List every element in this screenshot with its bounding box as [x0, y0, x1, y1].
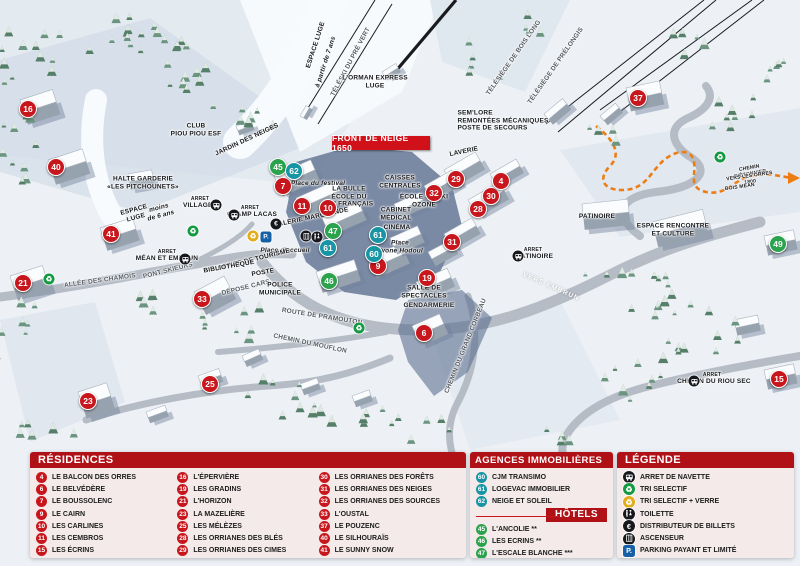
legende-header: LÉGENDE	[617, 452, 794, 468]
bus-icon	[623, 471, 635, 483]
list-item: 9LE CAIRN	[36, 508, 177, 520]
parking-icon: P.	[261, 232, 272, 243]
item-label: LES CEMBROS	[52, 535, 103, 542]
item-label: LES ORRIANES DES NEIGES	[335, 486, 432, 493]
recycle-yellow-icon: ♻	[623, 496, 635, 508]
map-marker-4: 4	[492, 172, 510, 190]
map-marker-7: 7	[274, 177, 292, 195]
item-number-badge: 46	[476, 536, 487, 547]
recycle-green-icon: ♻	[715, 152, 726, 163]
front-de-neige-banner: FRONT DE NEIGE 1650	[332, 136, 430, 150]
map-label: L'ORMAN EXPRESS LUGE	[342, 74, 408, 89]
map-marker-25: 25	[201, 375, 219, 393]
item-label: CJM TRANSIMO	[492, 474, 546, 481]
map-marker-41: 41	[102, 225, 120, 243]
list-item: 7LE BOUSSOLENC	[36, 496, 177, 508]
residences-panel: RÉSIDENCES 4LE BALCON DES ORRES6LE BELVÉ…	[30, 452, 466, 558]
residences-title: RÉSIDENCES	[38, 454, 114, 466]
agences-hotels-panel: AGENCES IMMOBILIÈRES 60CJM TRANSIMO61LOG…	[470, 452, 613, 558]
list-item: 30LES ORRIANES DES FORÊTS	[319, 471, 460, 483]
hotels-divider	[476, 516, 560, 517]
item-number-badge: 61	[476, 484, 487, 495]
map-marker-21: 21	[14, 274, 32, 292]
agences-header: AGENCES IMMOBILIÈRES	[470, 452, 613, 468]
item-number-badge: 29	[177, 545, 188, 556]
map-marker-19: 19	[418, 269, 436, 287]
list-item: 45L'ANCOLIE **	[476, 523, 607, 535]
item-label: TOILETTE	[640, 511, 674, 518]
map-bus-icon	[513, 251, 524, 262]
hotels-header: HÔTELS	[476, 509, 607, 522]
map-bus-icon	[229, 210, 240, 221]
legende-list: ARRET DE NAVETTE♻TRI SELECTIF♻TRI SELECT…	[623, 471, 788, 557]
map-marker-61: 61	[369, 226, 387, 244]
list-item: 19LES GRADINS	[177, 483, 318, 495]
toilet-icon	[623, 508, 635, 520]
recycle-green-icon: ♻	[354, 323, 365, 334]
item-label: LE BELVÉDÈRE	[52, 486, 105, 493]
item-label: LE POUZENC	[335, 523, 380, 530]
map-label: PATINOIRE	[579, 213, 615, 221]
map-marker-33: 33	[193, 290, 211, 308]
list-item: 23LA MAZELIÈRE	[177, 508, 318, 520]
item-label: LOGEVAC IMMOBILIER	[492, 486, 570, 493]
item-number-badge: 31	[319, 484, 330, 495]
item-number-badge: 60	[476, 472, 487, 483]
legende-panel: LÉGENDE ARRET DE NAVETTE♻TRI SELECTIF♻TR…	[617, 452, 794, 558]
bus-icon	[180, 254, 191, 265]
list-item: 32LES ORRIANES DES SOURCES	[319, 496, 460, 508]
list-item: 37LE POUZENC	[319, 520, 460, 532]
list-item: 46LES ECRINS **	[476, 535, 607, 547]
list-item: 47L'ESCALE BLANCHE ***	[476, 547, 607, 558]
item-label: ARRET DE NAVETTE	[640, 474, 710, 481]
item-number-badge: 41	[319, 545, 330, 556]
item-label: TRI SELECTIF + VERRE	[640, 498, 719, 505]
resort-map-poster: FRONT DE NEIGE 1650 16404121332325711109…	[0, 0, 800, 566]
map-recycle-yellow-icon: ♻	[248, 231, 259, 242]
list-item: 15LES ÉCRINS	[36, 545, 177, 557]
item-number-badge: 62	[476, 496, 487, 507]
elevator-icon	[623, 533, 635, 545]
item-label: L'ESCALE BLANCHE ***	[492, 550, 573, 557]
legende-item: ASCENSEUR	[623, 532, 788, 544]
list-item: 33L'OUSTAL	[319, 508, 460, 520]
item-label: LE SILHOURAÏS	[335, 535, 389, 542]
list-item: 11LES CEMBROS	[36, 532, 177, 544]
list-item: 4LE BALCON DES ORRES	[36, 471, 177, 483]
map-marker-37: 37	[629, 89, 647, 107]
map-toilet-icon	[312, 232, 323, 243]
item-label: LES ORRIANES DES BLÉS	[193, 535, 282, 542]
map-marker-16: 16	[19, 100, 37, 118]
item-number-badge: 21	[177, 496, 188, 507]
item-label: ASCENSEUR	[640, 535, 684, 542]
item-label: LE BALCON DES ORRES	[52, 474, 136, 481]
item-number-badge: 30	[319, 472, 330, 483]
item-label: NEIGE ET SOLEIL	[492, 498, 552, 505]
map-label: GENDARMERIE	[404, 302, 455, 310]
map-marker-6: 6	[415, 324, 433, 342]
list-item: 60CJM TRANSIMO	[476, 471, 607, 483]
item-label: L'ÉPERVIÈRE	[193, 474, 239, 481]
item-label: TRI SELECTIF	[640, 486, 687, 493]
map-marker-40: 40	[47, 158, 65, 176]
map-label: POLICE MUNICIPALE	[259, 281, 301, 296]
item-number-badge: 23	[177, 509, 188, 520]
euro-icon: €	[623, 520, 635, 532]
map-label: CAISSES CENTRALES	[379, 174, 421, 189]
map-marker-15: 15	[770, 370, 788, 388]
item-number-badge: 28	[177, 533, 188, 544]
map-bus-icon	[180, 254, 191, 265]
list-item: 31LES ORRIANES DES NEIGES	[319, 483, 460, 495]
item-number-badge: 33	[319, 509, 330, 520]
list-item: 25LES MÉLÈZES	[177, 520, 318, 532]
list-item: 29LES ORRIANES DES CIMES	[177, 545, 318, 557]
item-label: LE CAIRN	[52, 511, 85, 518]
list-item: 62NEIGE ET SOLEIL	[476, 496, 607, 508]
map-marker-47: 47	[324, 222, 342, 240]
map-marker-46: 46	[320, 272, 338, 290]
agences-list: 60CJM TRANSIMO61LOGEVAC IMMOBILIER62NEIG…	[476, 471, 607, 508]
item-label: L'HORIZON	[193, 498, 231, 505]
item-number-badge: 16	[177, 472, 188, 483]
item-label: LA MAZELIÈRE	[193, 511, 244, 518]
item-label: LE SUNNY SNOW	[335, 547, 394, 554]
map-marker-32: 32	[425, 184, 443, 202]
item-number-badge: 4	[36, 472, 47, 483]
legende-title: LÉGENDE	[625, 454, 681, 466]
recycle-yellow-icon: ♻	[248, 231, 259, 242]
list-item: 28LES ORRIANES DES BLÉS	[177, 532, 318, 544]
bus-icon	[229, 210, 240, 221]
item-label: LES ECRINS **	[492, 538, 541, 545]
item-number-badge: 32	[319, 496, 330, 507]
toilet-icon	[312, 232, 323, 243]
euro-icon: €	[271, 219, 282, 230]
bus-icon	[513, 251, 524, 262]
item-label: LES CARLINES	[52, 523, 103, 530]
item-label: LES MÉLÈZES	[193, 523, 242, 530]
elevator-icon	[301, 231, 312, 242]
item-label: DISTRIBUTEUR DE BILLETS	[640, 523, 735, 530]
legende-item: ARRET DE NAVETTE	[623, 471, 788, 483]
map-elevator-icon	[301, 231, 312, 242]
list-item: 6LE BELVÉDÈRE	[36, 483, 177, 495]
map-marker-10: 10	[319, 199, 337, 217]
item-number-badge: 40	[319, 533, 330, 544]
map-bus-icon	[211, 200, 222, 211]
map-marker-23: 23	[79, 392, 97, 410]
map-label: HALTE GARDERIE «LES PITCHOUNETS»	[107, 175, 179, 190]
map-marker-31: 31	[443, 233, 461, 251]
map-recycle-green-icon: ♻	[354, 323, 365, 334]
legende-item: P.PARKING PAYANT ET LIMITÉ	[623, 545, 788, 557]
item-number-badge: 45	[476, 524, 487, 535]
list-item: 10LES CARLINES	[36, 520, 177, 532]
item-label: PARKING PAYANT ET LIMITÉ	[640, 547, 736, 554]
item-number-badge: 19	[177, 484, 188, 495]
list-item: 16L'ÉPERVIÈRE	[177, 471, 318, 483]
bus-icon	[211, 200, 222, 211]
map-marker-49: 49	[769, 235, 787, 253]
legende-item: TOILETTE	[623, 508, 788, 520]
list-item: 21L'HORIZON	[177, 496, 318, 508]
map-label: ESPACE RENCONTRE ET CULTURE	[637, 222, 709, 237]
item-number-badge: 6	[36, 484, 47, 495]
item-label: LES ÉCRINS	[52, 547, 94, 554]
map-label: Place du festival	[291, 180, 345, 188]
legende-item: ♻TRI SELECTIF	[623, 483, 788, 495]
map-euro-icon: €	[271, 219, 282, 230]
list-item: 41LE SUNNY SNOW	[319, 545, 460, 557]
legende-item: €DISTRIBUTEUR DE BILLETS	[623, 520, 788, 532]
item-label: LES GRADINS	[193, 486, 241, 493]
map-recycle-green-icon: ♻	[715, 152, 726, 163]
item-number-badge: 15	[36, 545, 47, 556]
recycle-green-icon: ♻	[188, 226, 199, 237]
item-label: L'OUSTAL	[335, 511, 369, 518]
map-bus-icon	[689, 376, 700, 387]
map-label: CLUB PIOU PIOU ESF	[171, 122, 222, 137]
residences-header: RÉSIDENCES	[30, 452, 466, 468]
agences-title: AGENCES IMMOBILIÈRES	[475, 455, 602, 466]
item-label: LES ORRIANES DES FORÊTS	[335, 474, 434, 481]
item-label: LE BOUSSOLENC	[52, 498, 112, 505]
residences-list: 4LE BALCON DES ORRES6LE BELVÉDÈRE7LE BOU…	[30, 468, 466, 557]
map-marker-60: 60	[365, 245, 383, 263]
item-number-badge: 11	[36, 533, 47, 544]
map-recycle-green-icon: ♻	[44, 274, 55, 285]
item-number-badge: 9	[36, 509, 47, 520]
item-label: L'ANCOLIE **	[492, 526, 537, 533]
item-number-badge: 7	[36, 496, 47, 507]
item-number-badge: 25	[177, 521, 188, 532]
map-marker-28: 28	[469, 200, 487, 218]
list-item: 61LOGEVAC IMMOBILIER	[476, 483, 607, 495]
map-marker-45: 45	[269, 158, 287, 176]
item-label: LES ORRIANES DES SOURCES	[335, 498, 440, 505]
recycle-green-icon: ♻	[623, 483, 635, 495]
list-item: 40LE SILHOURAÏS	[319, 532, 460, 544]
parking-icon: P.	[623, 545, 635, 557]
item-number-badge: 37	[319, 521, 330, 532]
map-parking-icon: P.	[261, 232, 272, 243]
recycle-green-icon: ♻	[44, 274, 55, 285]
map-recycle-green-icon: ♻	[188, 226, 199, 237]
hotels-list: 45L'ANCOLIE **46LES ECRINS **47L'ESCALE …	[476, 523, 607, 558]
map-label: CINÉMA	[384, 224, 411, 232]
map-marker-62: 62	[285, 162, 303, 180]
map-marker-29: 29	[447, 170, 465, 188]
item-number-badge: 10	[36, 521, 47, 532]
legende-item: ♻TRI SELECTIF + VERRE	[623, 496, 788, 508]
map-marker-11: 11	[293, 197, 311, 215]
map-label: SEM'LORE REMONTÉES MÉCANIQUES POSTE DE S…	[457, 110, 548, 133]
bus-icon	[689, 376, 700, 387]
item-number-badge: 47	[476, 548, 487, 558]
item-label: LES ORRIANES DES CIMES	[193, 547, 286, 554]
